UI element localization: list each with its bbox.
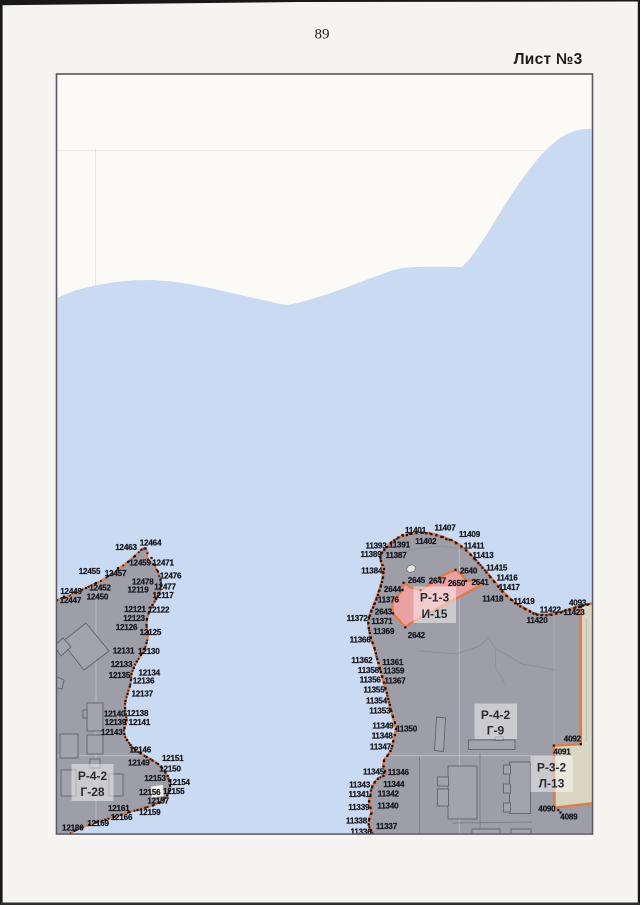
svg-text:11372: 11372 (347, 614, 369, 623)
svg-text:Р-1-3: Р-1-3 (420, 591, 450, 605)
svg-text:12450: 12450 (87, 593, 109, 602)
svg-text:11401: 11401 (405, 526, 427, 535)
svg-text:11413: 11413 (472, 551, 494, 560)
svg-text:11367: 11367 (384, 677, 406, 686)
svg-text:12161: 12161 (108, 804, 130, 813)
svg-text:12169: 12169 (87, 819, 109, 828)
svg-text:12455: 12455 (79, 567, 101, 576)
svg-text:12126: 12126 (116, 623, 138, 632)
svg-text:4091: 4091 (553, 748, 571, 757)
svg-text:11355: 11355 (363, 685, 385, 694)
svg-text:11359: 11359 (383, 667, 405, 676)
svg-text:11411: 11411 (464, 542, 485, 551)
svg-text:11358: 11358 (358, 666, 380, 675)
svg-text:12146: 12146 (130, 745, 152, 754)
svg-text:12121: 12121 (124, 605, 146, 614)
svg-text:11347: 11347 (370, 743, 392, 752)
svg-text:12155: 12155 (163, 787, 185, 796)
svg-text:11354: 11354 (366, 696, 388, 705)
svg-text:12125: 12125 (140, 628, 162, 637)
svg-text:4092: 4092 (564, 735, 582, 744)
svg-text:12135: 12135 (109, 671, 131, 680)
svg-text:11337: 11337 (376, 822, 398, 831)
svg-text:11349: 11349 (372, 721, 394, 730)
svg-text:12150: 12150 (159, 765, 181, 774)
svg-text:12463: 12463 (115, 543, 137, 552)
svg-text:11416: 11416 (496, 574, 518, 583)
svg-text:12180: 12180 (62, 824, 84, 833)
svg-text:2647: 2647 (429, 577, 447, 586)
svg-text:Г-28: Г-28 (80, 785, 104, 799)
svg-text:11342: 11342 (378, 789, 400, 798)
svg-text:11356: 11356 (360, 675, 382, 684)
svg-text:11407: 11407 (434, 524, 456, 533)
svg-text:12143: 12143 (101, 728, 123, 737)
svg-text:2641: 2641 (471, 578, 489, 587)
svg-text:12136: 12136 (133, 677, 155, 686)
svg-text:12154: 12154 (168, 778, 190, 787)
svg-text:12457: 12457 (105, 569, 127, 578)
svg-text:11339: 11339 (348, 803, 370, 812)
svg-text:Р-4-2: Р-4-2 (78, 769, 108, 783)
svg-text:2650: 2650 (448, 579, 466, 588)
svg-text:12447: 12447 (60, 596, 82, 605)
svg-text:12166: 12166 (111, 813, 133, 822)
svg-text:Л-13: Л-13 (539, 777, 565, 791)
svg-text:11338: 11338 (346, 816, 368, 825)
svg-text:Р-4-2: Р-4-2 (481, 708, 511, 722)
svg-text:12122: 12122 (148, 606, 170, 615)
svg-text:11369: 11369 (373, 627, 395, 636)
svg-text:12130: 12130 (138, 647, 160, 656)
svg-text:4093: 4093 (569, 599, 587, 608)
svg-text:4089: 4089 (560, 813, 578, 822)
svg-text:12452: 12452 (89, 584, 111, 593)
svg-text:12157: 12157 (147, 796, 169, 805)
svg-text:12138: 12138 (127, 709, 149, 718)
svg-text:11402: 11402 (415, 537, 437, 546)
svg-text:11418: 11418 (482, 595, 504, 604)
svg-text:11371: 11371 (371, 617, 393, 626)
svg-text:11350: 11350 (396, 725, 418, 734)
svg-text:11422: 11422 (540, 605, 562, 614)
svg-text:11409: 11409 (459, 530, 481, 539)
svg-text:И-15: И-15 (422, 607, 448, 621)
svg-text:11340: 11340 (377, 801, 399, 810)
svg-text:Р-3-2: Р-3-2 (537, 761, 567, 775)
svg-text:2643: 2643 (375, 607, 393, 616)
svg-text:12459: 12459 (129, 559, 151, 568)
svg-text:11389: 11389 (360, 550, 382, 559)
svg-text:11344: 11344 (383, 780, 405, 789)
svg-text:11353: 11353 (369, 707, 391, 716)
svg-text:12151: 12151 (162, 754, 184, 763)
svg-text:11362: 11362 (351, 656, 373, 665)
svg-text:11415: 11415 (486, 563, 508, 572)
svg-text:12123: 12123 (123, 614, 145, 623)
svg-text:11384: 11384 (361, 567, 383, 576)
svg-text:11361: 11361 (382, 658, 404, 667)
svg-text:Г-9: Г-9 (487, 724, 505, 738)
svg-text:11420: 11420 (526, 616, 548, 625)
svg-text:11345: 11345 (363, 768, 385, 777)
svg-text:11336: 11336 (350, 828, 372, 837)
svg-text:Лист №3: Лист №3 (514, 51, 583, 68)
svg-text:12449: 12449 (60, 587, 82, 596)
svg-text:11423: 11423 (563, 608, 585, 617)
svg-text:12464: 12464 (140, 539, 162, 548)
svg-text:12119: 12119 (127, 586, 149, 595)
svg-text:11366: 11366 (350, 636, 372, 645)
svg-text:89: 89 (315, 27, 330, 43)
svg-text:11391: 11391 (389, 541, 411, 550)
svg-text:12133: 12133 (111, 660, 133, 669)
svg-text:11387: 11387 (385, 551, 407, 560)
svg-text:11376: 11376 (378, 596, 400, 605)
svg-text:12149: 12149 (128, 759, 150, 768)
svg-text:12153: 12153 (144, 774, 166, 783)
svg-text:11417: 11417 (499, 583, 521, 592)
svg-text:2645: 2645 (408, 576, 426, 585)
svg-text:12139: 12139 (105, 718, 127, 727)
svg-text:12141: 12141 (129, 718, 151, 727)
svg-text:11419: 11419 (513, 597, 535, 606)
svg-text:12131: 12131 (113, 646, 135, 655)
svg-text:12471: 12471 (152, 559, 174, 568)
svg-text:11348: 11348 (372, 732, 394, 741)
svg-text:12117: 12117 (152, 591, 174, 600)
svg-text:12159: 12159 (139, 808, 161, 817)
svg-text:2644: 2644 (384, 585, 402, 594)
svg-text:11343: 11343 (349, 781, 371, 790)
svg-text:2640: 2640 (460, 567, 478, 576)
svg-text:4090: 4090 (538, 805, 556, 814)
svg-text:11346: 11346 (388, 768, 410, 777)
svg-text:12476: 12476 (160, 572, 182, 581)
svg-text:11341: 11341 (348, 790, 370, 799)
svg-text:12137: 12137 (131, 689, 153, 698)
svg-text:2642: 2642 (408, 631, 426, 640)
